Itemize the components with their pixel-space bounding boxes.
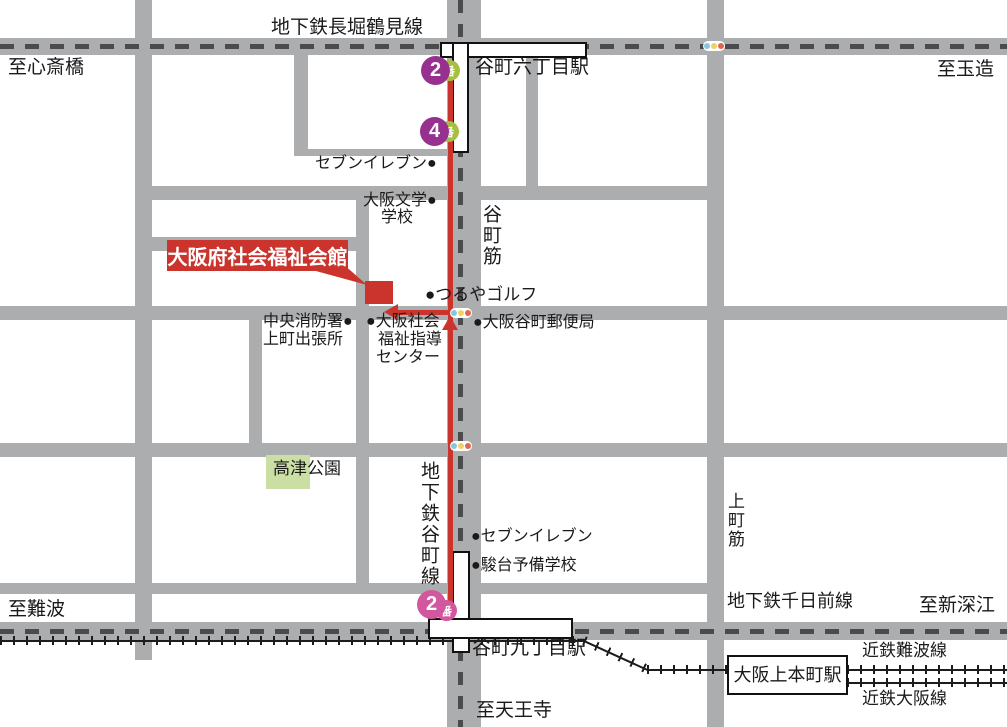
line-label-nagahori: 地下鉄長堀鶴見線 <box>271 18 423 38</box>
tanimachi9-station-platform <box>428 618 573 639</box>
railway-kintetsu-namba <box>847 665 1007 674</box>
landmark-bungaku-line2: 学校 <box>381 210 413 227</box>
road-v1 <box>135 0 152 660</box>
landmark-post-office: ●大阪谷町郵便局 <box>473 315 595 332</box>
direction-shinsaibashi: 至心斎橋 <box>8 58 84 78</box>
exit-number-label: 2 <box>426 593 437 616</box>
destination-building-marker <box>365 281 393 304</box>
signal-red-dot <box>465 443 471 449</box>
landmark-welfare-center-line2: 福祉指導 <box>378 332 442 349</box>
road-va <box>294 55 308 156</box>
landmark-fire-station-line2: 上町出張所 <box>263 332 343 349</box>
landmark-seven-eleven-top: セブンイレブン● <box>315 156 437 173</box>
route-line-vertical <box>448 80 453 608</box>
street-label-tanimachi-suji: 谷町筋 <box>481 204 500 267</box>
road-uemachi-suji <box>707 0 724 727</box>
signal-yellow-dot <box>711 43 717 49</box>
station-label-uehommachi: 大阪上本町駅 <box>734 666 842 685</box>
street-label-uemachi-suji: 上町筋 <box>726 492 743 549</box>
direction-tennoji: 至天王寺 <box>476 701 552 721</box>
exit-4-marker: 4 <box>420 117 449 146</box>
exit-2-top-marker: 2 <box>421 56 450 85</box>
exit-number-label: 2 <box>430 59 441 82</box>
landmark-fire-station-line1: 中央消防署● <box>263 314 353 331</box>
signal-blue-dot <box>704 43 710 49</box>
route-arrowhead-up <box>442 316 458 330</box>
road-v357 <box>356 186 369 590</box>
landmark-sundai-school: ●駿台予備学校 <box>471 558 577 575</box>
direction-shinfukae: 至新深江 <box>919 596 995 616</box>
landmark-bungaku-line1: 大阪文学● <box>363 193 437 210</box>
line-label-kintetsu-namba: 近鉄難波線 <box>862 642 947 660</box>
signal-yellow-dot <box>458 443 464 449</box>
traffic-signal-icon <box>450 441 472 451</box>
signal-blue-dot <box>451 443 457 449</box>
station-label-tanimachi9: 谷町九丁目駅 <box>472 639 586 659</box>
direction-tamatsukuri: 至玉造 <box>937 60 994 80</box>
landmark-welfare-center-line3: センター <box>376 350 440 367</box>
landmark-kozu-park: 高津公園 <box>273 460 341 478</box>
landmark-welfare-center-line1: ●大阪社会 <box>366 314 440 331</box>
railway-kintetsu-diagonal <box>582 636 649 673</box>
exit-2-bottom-marker: 2 <box>417 590 446 619</box>
signal-red-dot <box>465 310 471 316</box>
destination-label-box: 大阪府社会福祉会館 <box>167 240 348 271</box>
landmark-seven-eleven-bottom: ●セブンイレブン <box>471 529 593 546</box>
signal-blue-dot <box>451 310 457 316</box>
direction-namba: 至難波 <box>8 600 65 620</box>
station-label-tanimachi6: 谷町六丁目駅 <box>475 58 589 78</box>
railway-kintetsu-into-station <box>647 665 727 674</box>
landmark-tsuruya-golf: ●つるやゴルフ <box>425 286 537 304</box>
traffic-signal-icon <box>703 41 725 51</box>
exit-number-label: 4 <box>429 120 440 143</box>
traffic-signal-icon <box>450 308 472 318</box>
tanimachi9-junction-patch <box>454 620 468 637</box>
line-label-tanimachi: 地下鉄谷町線 <box>419 461 438 587</box>
destination-label: 大阪府社会福祉会館 <box>168 241 348 270</box>
line-label-kintetsu-osaka: 近鉄大阪線 <box>862 690 947 708</box>
signal-red-dot <box>718 43 724 49</box>
road-v250 <box>249 306 262 457</box>
access-map: 大阪府社会福祉会館 番 2 番 4 番 2 地下鉄長堀鶴見線 至心斎橋 至玉造 … <box>0 0 1007 727</box>
uehommachi-station-box: 大阪上本町駅 <box>727 655 848 695</box>
line-label-sennichimae: 地下鉄千日前線 <box>727 592 853 611</box>
railway-kintetsu-osaka <box>847 678 1007 687</box>
signal-yellow-dot <box>458 310 464 316</box>
